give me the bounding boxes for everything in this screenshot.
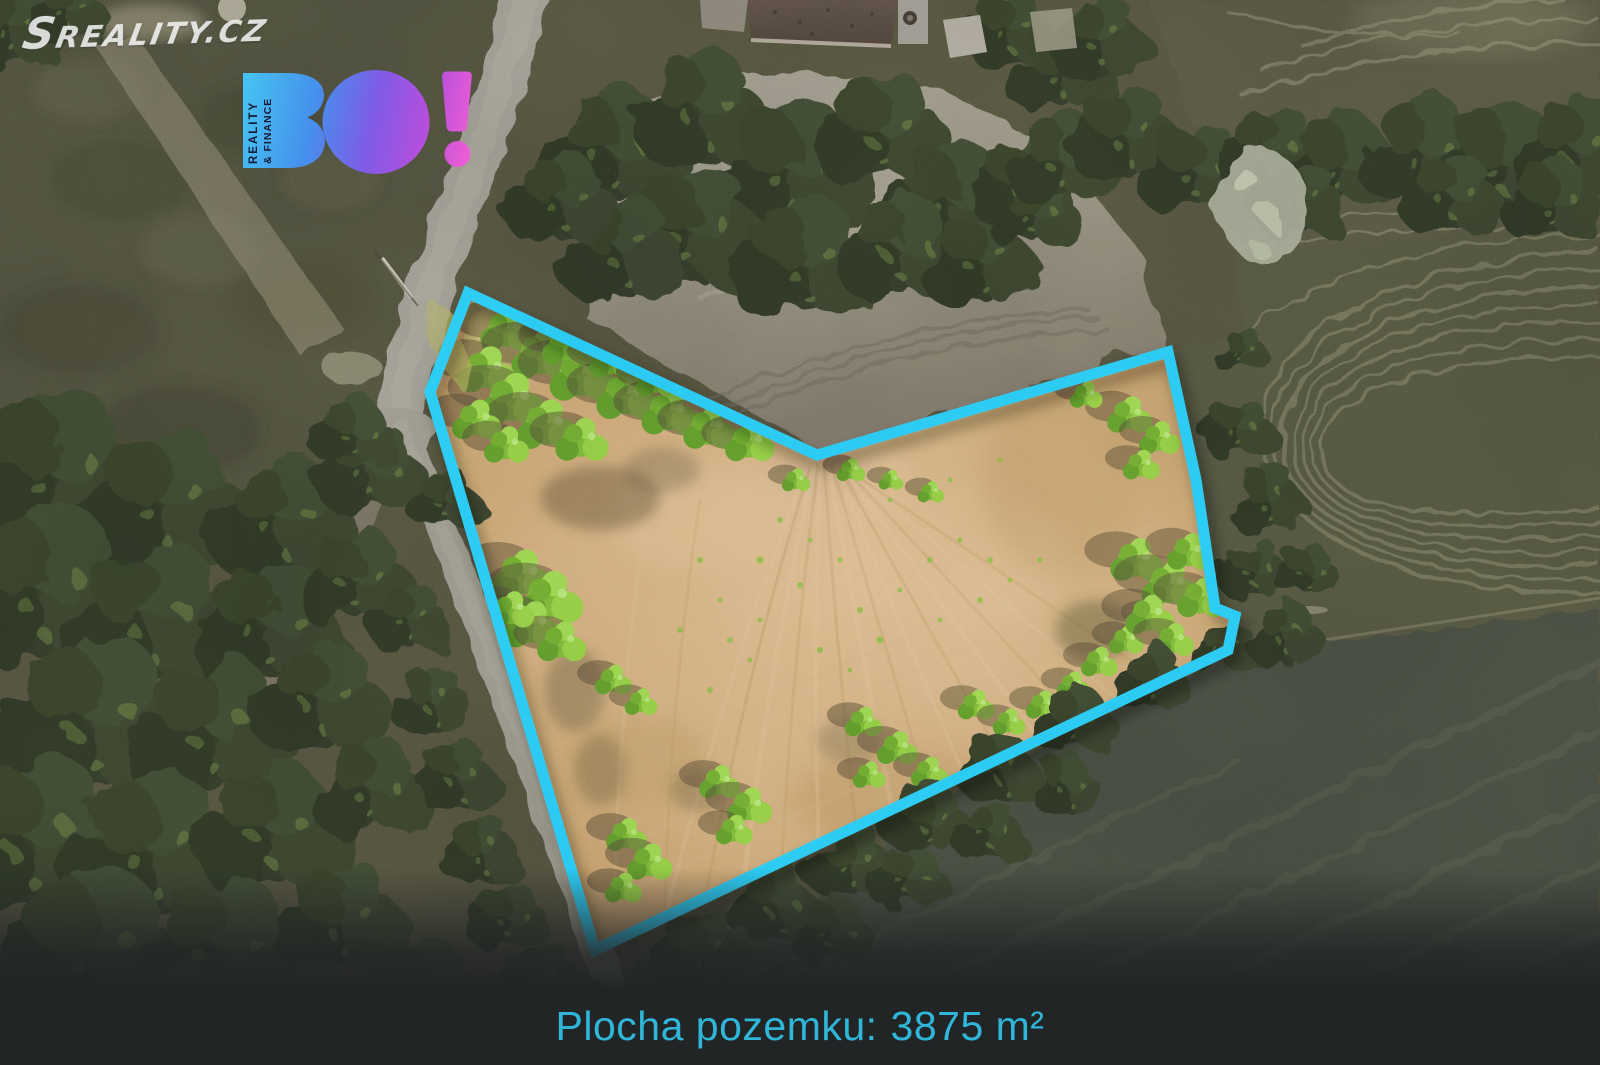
sreality-watermark: Sreality.cz [19,2,272,60]
logo-letter-o [323,70,430,174]
footer-bar: Plocha pozemku: 3875 m² [0,988,1600,1065]
logo-letter-exclaim-dot [445,141,471,167]
area-caption: Plocha pozemku: 3875 m² [556,1003,1045,1050]
area-caption-label: Plocha pozemku: [556,1003,878,1050]
grain-overlay [0,0,1600,1065]
logo-letter-exclaim-bar [442,72,472,132]
logo-plate: REALITY & FINANCE [243,73,278,168]
logo-letter-b [278,73,325,168]
logo-letters [278,70,472,174]
bo-logo: REALITY & FINANCE [243,70,475,176]
logo-vertical-text-2: & FINANCE [262,98,274,164]
logo-vertical-text-1: REALITY [248,101,260,164]
area-caption-value: 3875 m² [891,1003,1045,1050]
aerial-photo [0,0,1600,1065]
